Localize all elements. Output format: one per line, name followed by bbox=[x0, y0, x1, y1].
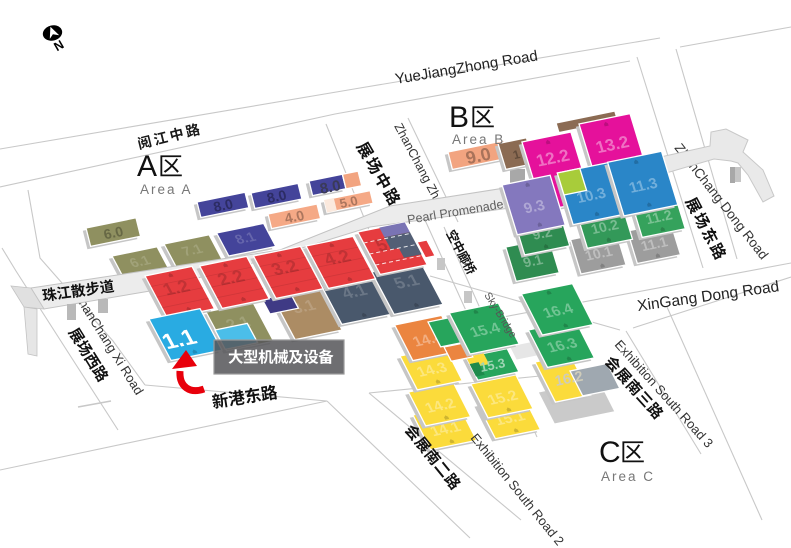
svg-text:Area B: Area B bbox=[452, 132, 505, 147]
svg-text:C: C bbox=[599, 436, 621, 469]
svg-text:B: B bbox=[449, 101, 469, 134]
svg-text:Area A: Area A bbox=[140, 182, 193, 197]
svg-text:Area C: Area C bbox=[601, 469, 655, 484]
svg-text:A: A bbox=[137, 150, 157, 183]
